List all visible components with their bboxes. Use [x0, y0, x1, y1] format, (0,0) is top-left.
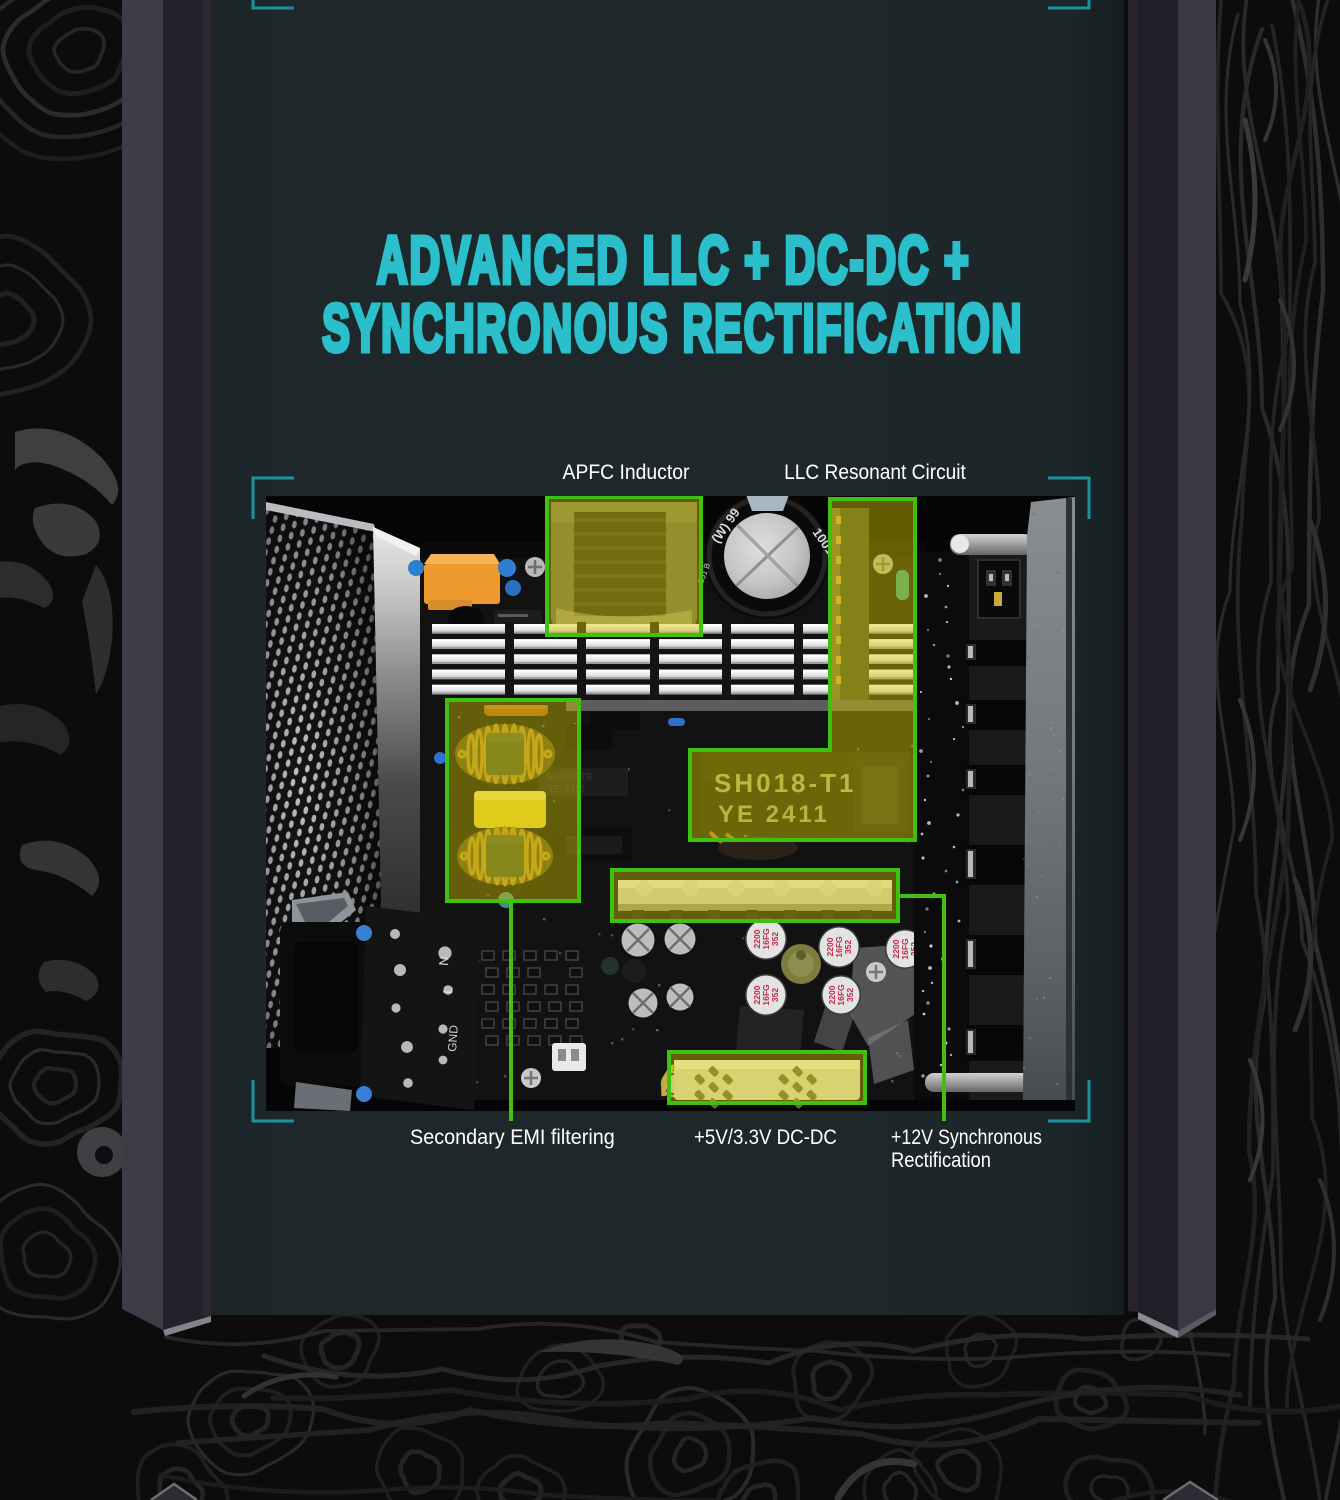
svg-text:LLC Resonant Circuit: LLC Resonant Circuit	[784, 461, 966, 484]
svg-text:352: 352	[770, 932, 780, 946]
svg-text:GND: GND	[445, 1024, 461, 1052]
svg-text:Secondary EMI filtering: Secondary EMI filtering	[410, 1127, 615, 1150]
svg-text:352: 352	[845, 988, 855, 1002]
svg-text:Rectification: Rectification	[891, 1149, 991, 1172]
svg-text:352: 352	[843, 940, 853, 954]
svg-text:APFC Inductor: APFC Inductor	[563, 461, 690, 484]
svg-text:SYNCHRONOUS RECTIFICATION: SYNCHRONOUS RECTIFICATION	[322, 291, 1023, 366]
svg-text:N: N	[436, 956, 452, 966]
svg-text:352: 352	[770, 988, 780, 1002]
svg-text:L: L	[440, 986, 455, 994]
svg-text:+5V/3.3V DC-DC: +5V/3.3V DC-DC	[694, 1126, 837, 1149]
svg-text:+12V Synchronous: +12V Synchronous	[891, 1126, 1042, 1150]
svg-text:ADVANCED LLC + DC-DC +: ADVANCED LLC + DC-DC +	[377, 222, 971, 297]
